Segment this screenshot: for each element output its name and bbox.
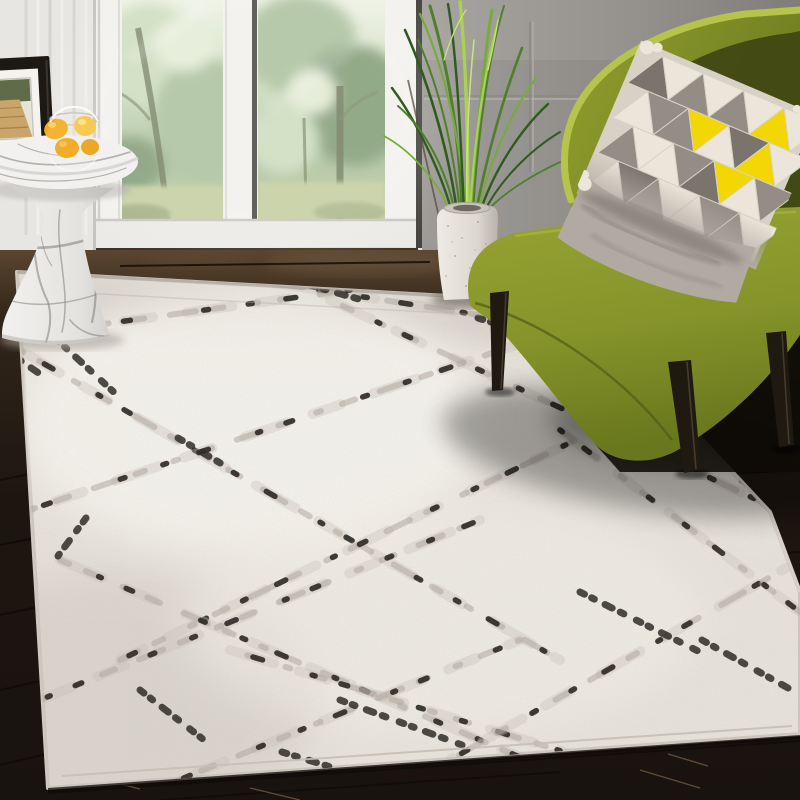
scene	[0, 0, 800, 800]
french-doors	[55, 0, 455, 260]
framed-photo	[0, 79, 32, 139]
living-room-photo	[0, 0, 800, 800]
